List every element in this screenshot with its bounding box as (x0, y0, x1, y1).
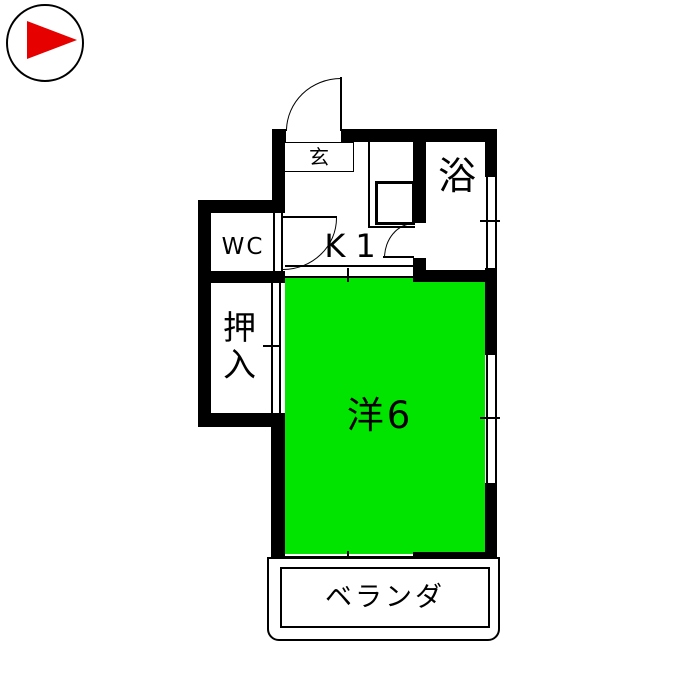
bath-label: 浴 (427, 150, 487, 202)
partition-wc-kitchen (273, 213, 283, 271)
main-room-label: 洋6 (325, 392, 435, 438)
wall-bath-bottom (413, 270, 497, 282)
entrance-door-swing-arc (286, 78, 341, 131)
wall-wc-bottom (198, 271, 285, 283)
wall-left-lower (198, 200, 211, 427)
genkan-label: 玄 (309, 147, 329, 167)
entrance-step-area: 玄 (284, 142, 354, 172)
tick-partition-kitchen-v (347, 268, 349, 282)
kitchen-sink-icon (375, 181, 415, 225)
window-main-right (486, 355, 497, 483)
wall-top-main (341, 129, 497, 142)
compass-arrow-icon (27, 21, 77, 59)
sliding-door-closet (271, 283, 281, 413)
compass-direction-icon (6, 4, 84, 82)
wall-wc-top (198, 200, 285, 213)
kitchen-label: K1 (300, 226, 400, 266)
wc-label: WC (213, 230, 273, 264)
window-bath (486, 177, 497, 268)
wall-main-left (271, 413, 285, 565)
tick-sliding-door-closet (263, 345, 280, 347)
kitchen-counter-edge-v (368, 142, 370, 228)
closet-label: 押入 (218, 304, 256, 390)
tick-window-main-right (480, 417, 500, 419)
veranda-floor: ベランダ (280, 567, 490, 628)
floor-plan-canvas: 玄 ベランダ 浴 WC K1 押入 洋6 (0, 0, 700, 700)
tick-window-bath (480, 220, 500, 222)
veranda-label: ベランダ (325, 584, 445, 611)
tick-partition-kitchen-h (340, 276, 356, 278)
